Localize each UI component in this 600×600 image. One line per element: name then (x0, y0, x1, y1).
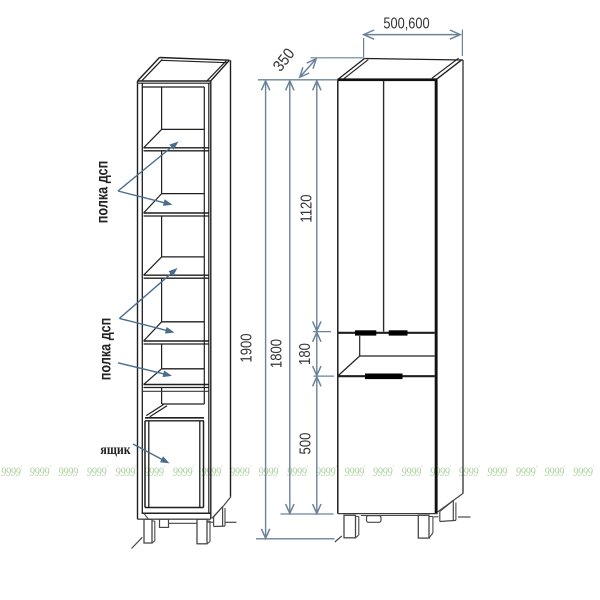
svg-text:9999′: 9999′ (1, 464, 22, 479)
svg-text:9999′: 9999′ (516, 464, 537, 479)
svg-text:500,600: 500,600 (383, 15, 429, 33)
svg-text:9999′: 9999′ (87, 464, 108, 479)
svg-text:9999′: 9999′ (573, 464, 594, 479)
svg-text:полка дсп: полка дсп (97, 318, 115, 380)
svg-text:180: 180 (297, 343, 314, 365)
svg-text:ящик: ящик (100, 441, 131, 457)
svg-text:9999′: 9999′ (173, 464, 194, 479)
svg-text:9999′: 9999′ (430, 464, 451, 479)
svg-text:1800: 1800 (268, 339, 285, 368)
svg-text:9999′: 9999′ (487, 464, 508, 479)
svg-text:1120: 1120 (298, 194, 315, 222)
svg-text:9999′: 9999′ (459, 464, 480, 479)
svg-text:9999′: 9999′ (58, 464, 79, 479)
svg-text:9999′: 9999′ (144, 464, 165, 479)
svg-text:9999′: 9999′ (316, 464, 337, 479)
svg-text:9999′: 9999′ (401, 464, 422, 479)
svg-text:1900: 1900 (238, 333, 255, 362)
svg-text:9999′: 9999′ (201, 464, 222, 479)
svg-text:9999′: 9999′ (373, 464, 394, 479)
svg-text:9999′: 9999′ (115, 464, 136, 479)
svg-text:9999′: 9999′ (544, 464, 565, 479)
svg-text:9999′: 9999′ (230, 464, 251, 479)
svg-text:полка дсп: полка дсп (94, 161, 112, 223)
svg-text:9999′: 9999′ (30, 464, 51, 479)
svg-text:500: 500 (297, 433, 314, 455)
svg-text:9999′: 9999′ (344, 464, 365, 479)
svg-text:9999′: 9999′ (258, 464, 279, 479)
svg-text:350: 350 (270, 45, 299, 75)
